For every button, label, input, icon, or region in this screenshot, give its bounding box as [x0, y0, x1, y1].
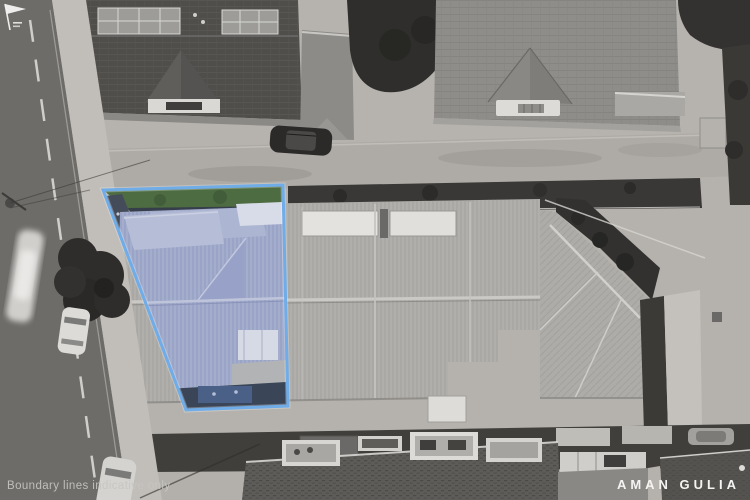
garage-extension — [300, 30, 354, 140]
boundary-disclaimer-text: Boundary lines indicative only — [7, 480, 171, 492]
skylight — [390, 211, 456, 236]
parked-black-car — [269, 125, 333, 156]
flag-icon — [0, 0, 40, 32]
solar-house — [83, 0, 303, 127]
aerial-scene — [0, 0, 750, 500]
agent-brand-name: AMAN GULIA — [617, 477, 740, 492]
skylight — [302, 211, 378, 236]
aerial-property-photo: Boundary lines indicative only AMAN GULI… — [0, 0, 750, 500]
white-shed — [428, 396, 466, 422]
